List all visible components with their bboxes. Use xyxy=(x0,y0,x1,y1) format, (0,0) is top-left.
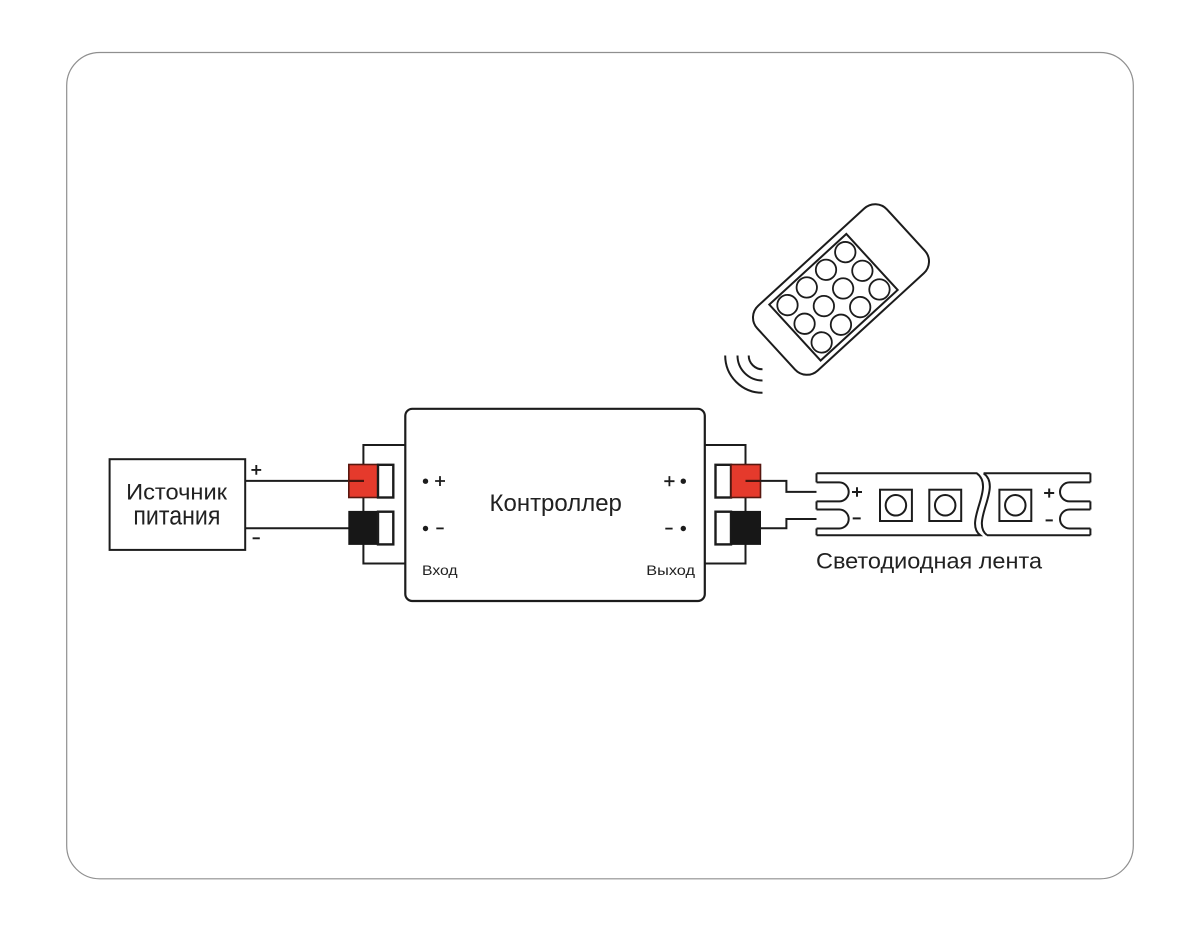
svg-text:Контроллер: Контроллер xyxy=(490,490,622,517)
svg-text:питания: питания xyxy=(133,501,220,531)
svg-text:Выход: Выход xyxy=(646,562,695,578)
svg-text:Светодиодная лента: Светодиодная лента xyxy=(816,549,1043,574)
svg-text:Вход: Вход xyxy=(422,562,458,578)
